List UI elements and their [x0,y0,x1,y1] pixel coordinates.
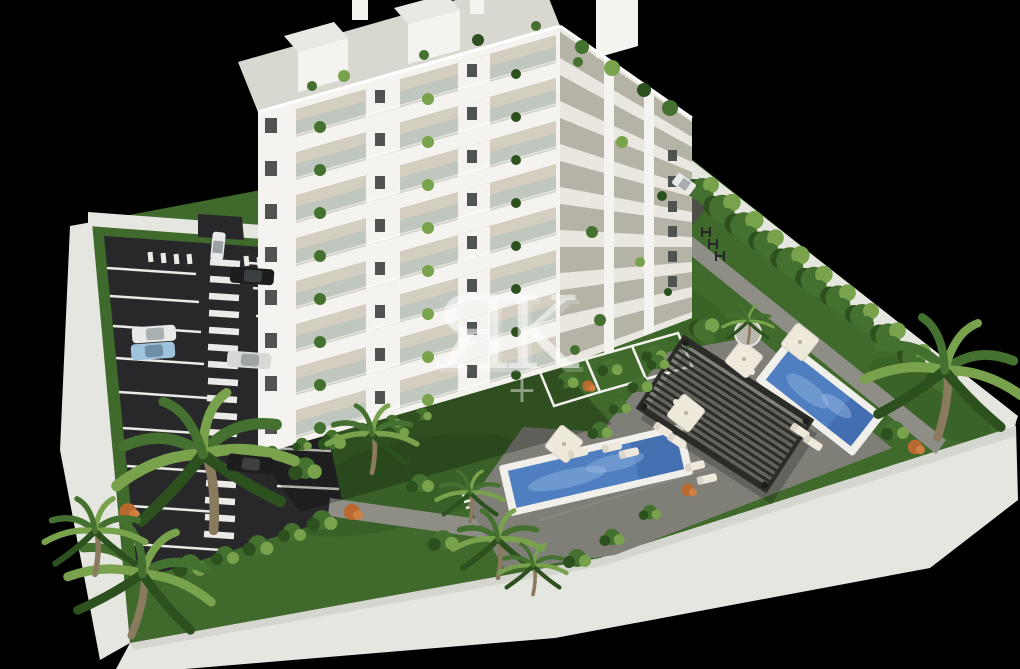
watermark-cross: + [507,370,537,411]
car-silver-parked [226,350,271,369]
render-canvas: ЯK ЯK + [0,0,1020,669]
watermark: ЯK ЯK + [432,275,584,411]
car-black-upper [229,266,274,285]
side-table [673,399,679,405]
site-render: ЯK ЯK + [0,0,1020,669]
car-white-parked [131,324,176,343]
side-table [749,369,755,375]
car-blue-parked [130,341,175,360]
